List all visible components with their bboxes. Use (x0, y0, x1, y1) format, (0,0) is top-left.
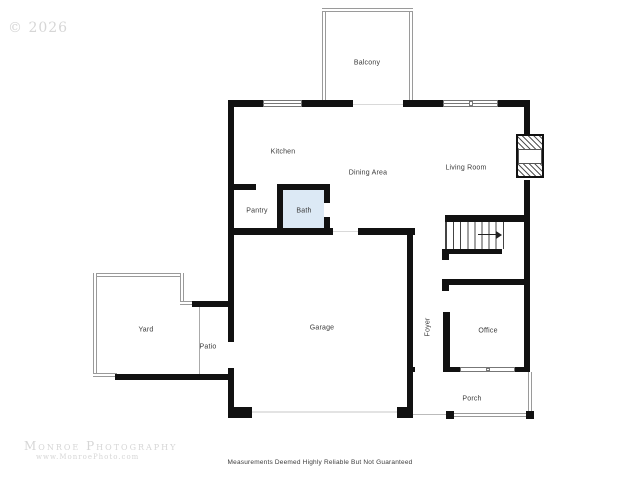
yard-fence-bottom (93, 373, 117, 377)
fireplace-hatch-top (518, 136, 542, 149)
wall-bath-left (277, 184, 283, 234)
room-label-porch: Porch (462, 396, 481, 403)
kitchen-window (263, 100, 302, 107)
wall-garage-right (407, 228, 413, 418)
porch-step-line (413, 414, 447, 415)
porch-post-right (526, 411, 534, 419)
wall-bath-right-upper (324, 184, 330, 203)
room-label-patio: Patio (200, 344, 217, 351)
wall-office-bottom-left (443, 367, 460, 372)
stair-direction-line (478, 234, 497, 235)
wall-office-left (443, 312, 450, 372)
porch-edge-bottom (447, 413, 533, 417)
fireplace-firebox (518, 149, 542, 164)
office-window (460, 367, 515, 372)
window-mullion (469, 101, 473, 106)
room-label-garage: Garage (310, 325, 335, 332)
garage-door-line (252, 411, 397, 413)
wall-stairs-top (445, 215, 530, 222)
room-label-foyer: Foyer (425, 318, 432, 337)
balcony-wall-top (322, 8, 413, 12)
wall-office-top (442, 279, 530, 285)
wall-bath-top (277, 184, 330, 190)
studio-watermark: Monroe Photography (24, 439, 177, 453)
room-label-dining: Dining Area (349, 170, 387, 177)
wall-right-upper (524, 100, 530, 134)
room-label-kitchen: Kitchen (271, 149, 296, 156)
balcony-wall-right (409, 8, 413, 103)
wall-foyer-door-nub (407, 367, 415, 372)
wall-garage-corner-left (228, 407, 252, 418)
room-label-bath: Bath (296, 208, 311, 215)
wall-top-b (302, 100, 353, 107)
fireplace (516, 134, 544, 178)
wall-patio-top (192, 301, 234, 307)
living-room-window (443, 100, 498, 107)
window-mullion (486, 368, 490, 371)
wall-yard-bottom (115, 374, 234, 380)
stair-direction-arrow-icon (496, 231, 502, 239)
wall-top-c (403, 100, 443, 107)
disclaimer-text: Measurements Deemed Highly Reliable But … (0, 459, 640, 466)
porch-post-left (446, 411, 454, 419)
wall-stairs-nub (442, 249, 449, 260)
wall-garage-corner-right (397, 407, 413, 418)
wall-stairs-bottom (442, 249, 502, 254)
wall-office-nub (442, 279, 449, 291)
wall-pantry-top (234, 184, 256, 190)
floorplan: Balcony Kitchen Dining Area Living Room … (0, 0, 640, 480)
yard-fence-top (93, 273, 184, 277)
yard-fence-left (93, 273, 97, 377)
wall-bath-right-lower (324, 217, 330, 234)
room-label-yard: Yard (138, 327, 153, 334)
fireplace-hatch-bottom (518, 164, 542, 177)
wall-office-bottom-right (515, 367, 530, 372)
room-label-pantry: Pantry (246, 208, 267, 215)
room-label-balcony: Balcony (354, 60, 380, 67)
copyright-watermark: © 2026 (8, 20, 68, 36)
balcony-wall-left (322, 8, 326, 103)
garage-entry-opening (333, 231, 358, 232)
wall-right-lower (524, 180, 530, 372)
room-label-living: Living Room (445, 165, 486, 172)
patio-divider-line (199, 307, 200, 375)
balcony-door-opening (353, 104, 403, 105)
room-label-office: Office (478, 328, 497, 335)
